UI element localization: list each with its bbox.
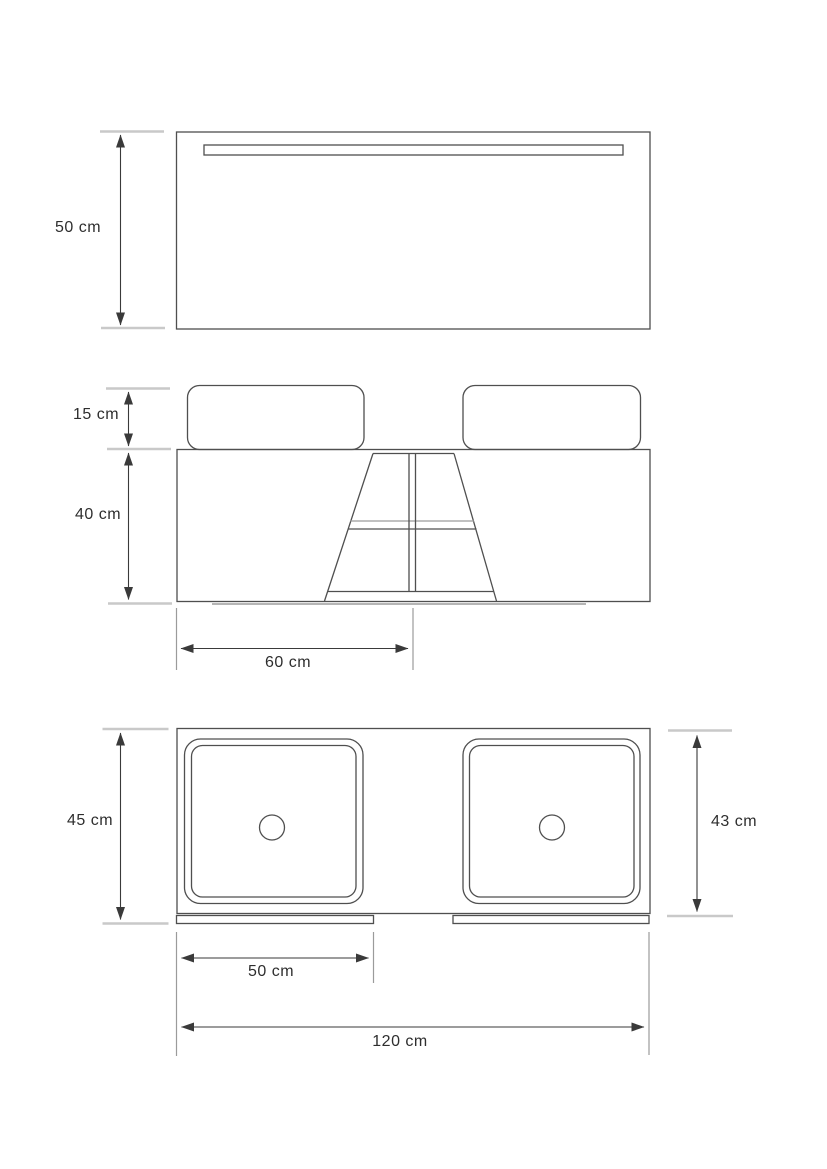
dim-mirror-height bbox=[100, 132, 165, 329]
cabinet-outline bbox=[177, 450, 650, 602]
dim-label-overall-depth: 45 cm bbox=[67, 812, 113, 830]
mirror-outline bbox=[177, 132, 651, 329]
shelf-right-slant bbox=[454, 454, 497, 602]
dim-label-overall-width: 120 cm bbox=[372, 1033, 427, 1051]
shelf-left-slant bbox=[325, 454, 374, 602]
dim-label-basin-depth: 43 cm bbox=[711, 813, 757, 831]
dim-label-basin-width: 50 cm bbox=[248, 963, 294, 981]
left-front-edge-strip bbox=[177, 916, 374, 924]
left-basin-top-outer bbox=[185, 739, 364, 904]
right-basin-front bbox=[463, 386, 641, 450]
open-shelf-section bbox=[325, 454, 497, 602]
dim-label-cabinet-height: 40 cm bbox=[75, 506, 121, 524]
dim-cabinet-height bbox=[108, 453, 172, 604]
drawing-svg bbox=[0, 0, 827, 1169]
dim-label-mirror-height: 50 cm bbox=[55, 219, 101, 237]
dim-label-open-section-width: 60 cm bbox=[265, 654, 311, 672]
mirror-light-strip bbox=[204, 145, 623, 155]
dim-label-basin-height: 15 cm bbox=[73, 406, 119, 424]
right-basin-top-outer bbox=[463, 739, 640, 904]
left-basin-front bbox=[188, 386, 365, 450]
technical-drawing-canvas: 50 cm 15 cm 40 cm 60 cm 45 cm 43 cm 50 c… bbox=[0, 0, 827, 1169]
vanity-front-view bbox=[177, 386, 650, 605]
right-front-edge-strip bbox=[453, 916, 649, 924]
vanity-top-view bbox=[177, 729, 651, 924]
mirror-front-view bbox=[177, 132, 651, 329]
dim-basin-width bbox=[177, 932, 374, 1056]
